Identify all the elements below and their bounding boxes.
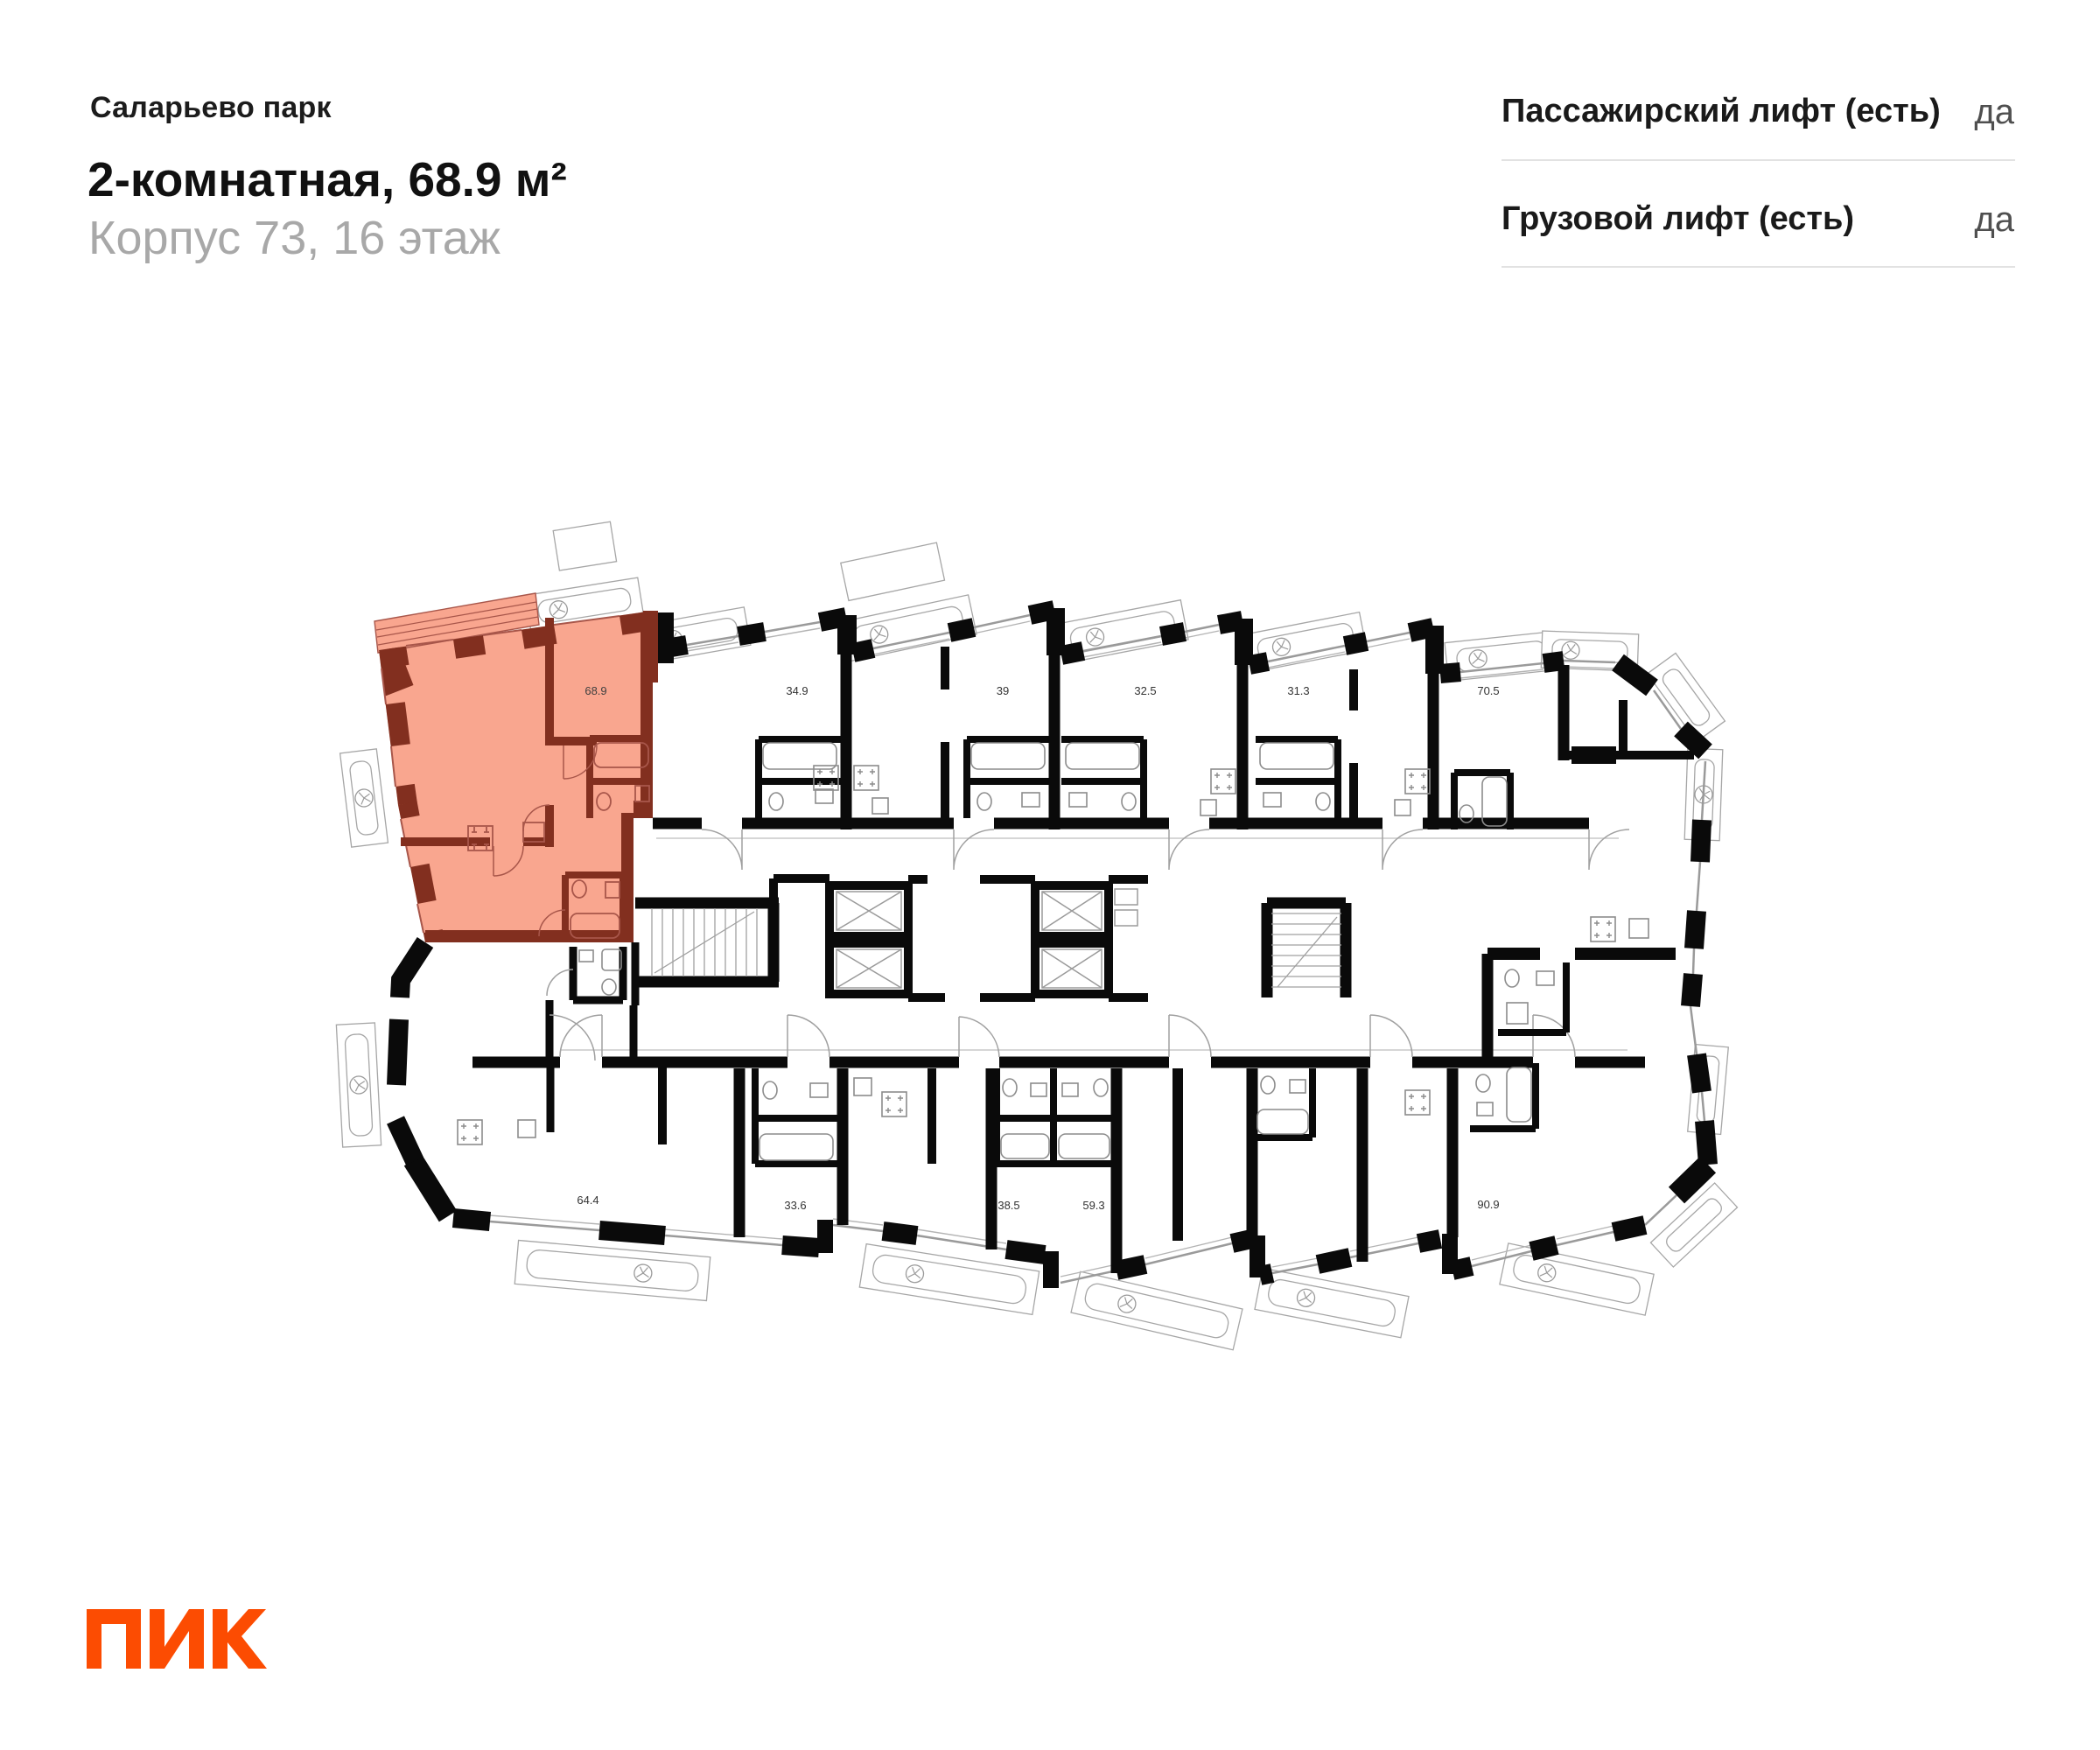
svg-text:38.5: 38.5 [997, 1199, 1019, 1212]
svg-text:31.3: 31.3 [1287, 684, 1309, 697]
svg-text:59.3: 59.3 [1082, 1199, 1104, 1212]
svg-text:34.9: 34.9 [786, 684, 808, 697]
svg-text:64.4: 64.4 [577, 1193, 598, 1207]
svg-text:68.9: 68.9 [584, 684, 606, 697]
svg-text:33.6: 33.6 [784, 1199, 806, 1212]
svg-text:32.5: 32.5 [1134, 684, 1156, 697]
svg-text:90.9: 90.9 [1477, 1198, 1499, 1211]
svg-text:70.5: 70.5 [1477, 684, 1499, 697]
svg-text:39: 39 [997, 684, 1009, 697]
